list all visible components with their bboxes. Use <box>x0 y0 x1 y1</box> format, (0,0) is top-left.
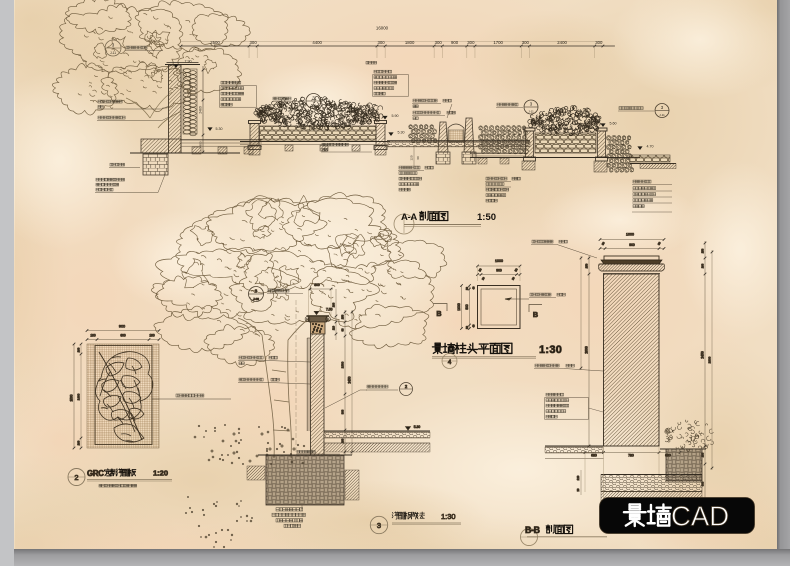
svg-text:2500: 2500 <box>210 40 220 45</box>
svg-text:120: 120 <box>410 155 414 160</box>
svg-text:110: 110 <box>332 325 336 330</box>
svg-text:B-B: B-B <box>525 525 540 535</box>
svg-text:100: 100 <box>77 347 81 352</box>
svg-text:900: 900 <box>629 243 635 247</box>
svg-text:150: 150 <box>585 263 589 268</box>
svg-text:J-11: J-11 <box>528 110 534 114</box>
svg-text:2480: 2480 <box>199 106 203 114</box>
svg-text:200: 200 <box>341 438 345 443</box>
svg-text:4: 4 <box>448 359 452 366</box>
svg-text:100: 100 <box>90 334 96 338</box>
svg-text:J-08: J-08 <box>253 297 259 301</box>
svg-text:B: B <box>533 310 538 319</box>
svg-text:300: 300 <box>314 283 320 287</box>
svg-text:300: 300 <box>377 40 385 45</box>
svg-text:60: 60 <box>341 328 345 331</box>
svg-text:CAD: CAD <box>671 501 729 532</box>
svg-text:2: 2 <box>74 473 78 482</box>
svg-text:150: 150 <box>341 314 345 319</box>
svg-text:60: 60 <box>416 156 420 160</box>
svg-text:5.90: 5.90 <box>392 114 399 118</box>
svg-text:J-11: J-11 <box>659 113 665 117</box>
svg-text:150: 150 <box>701 248 705 253</box>
svg-text:1800: 1800 <box>405 40 415 45</box>
svg-text:1560: 1560 <box>70 394 74 401</box>
svg-text:100: 100 <box>149 334 155 338</box>
svg-text:2450: 2450 <box>701 351 705 359</box>
svg-text:100: 100 <box>701 263 705 268</box>
svg-text:3: 3 <box>377 521 381 530</box>
svg-text:5.60: 5.60 <box>610 122 617 126</box>
svg-text:A-A: A-A <box>401 212 417 223</box>
svg-text:100: 100 <box>77 440 81 445</box>
svg-text:900: 900 <box>199 141 203 146</box>
svg-text:2600: 2600 <box>585 346 589 354</box>
svg-text:900: 900 <box>451 40 459 45</box>
svg-text:1000: 1000 <box>457 303 461 311</box>
svg-text:1000: 1000 <box>626 233 634 237</box>
svg-text:900: 900 <box>496 269 502 273</box>
svg-text:1000: 1000 <box>495 259 503 263</box>
svg-text:900: 900 <box>119 325 125 329</box>
svg-text:1:20: 1:20 <box>153 469 168 478</box>
svg-text:16000: 16000 <box>376 26 389 31</box>
svg-text:2800: 2800 <box>708 356 712 363</box>
svg-text:50: 50 <box>465 287 469 290</box>
svg-text:1360: 1360 <box>77 393 81 400</box>
svg-text:1:50: 1:50 <box>477 212 496 223</box>
svg-text:680: 680 <box>665 454 671 458</box>
svg-text:5.30: 5.30 <box>216 127 223 131</box>
svg-text:300: 300 <box>467 40 475 45</box>
svg-text:300: 300 <box>250 40 258 45</box>
svg-text:900: 900 <box>465 304 469 310</box>
svg-text:1560: 1560 <box>341 361 345 368</box>
svg-text:3: 3 <box>312 96 315 101</box>
svg-text:120: 120 <box>576 475 580 480</box>
svg-text:B: B <box>436 309 441 318</box>
svg-text:2450: 2450 <box>348 376 352 383</box>
svg-text:5.30: 5.30 <box>414 425 421 429</box>
svg-text:300: 300 <box>522 40 530 45</box>
svg-text:4.70: 4.70 <box>647 145 654 149</box>
svg-text:200: 200 <box>332 302 336 307</box>
svg-text:300: 300 <box>595 40 603 45</box>
svg-text:780: 780 <box>628 454 634 458</box>
svg-text:2400: 2400 <box>557 40 567 45</box>
svg-text:680: 680 <box>591 454 597 458</box>
svg-text:J-11: J-11 <box>311 104 317 108</box>
svg-text:50: 50 <box>465 326 469 329</box>
svg-text:5.30: 5.30 <box>398 131 405 135</box>
svg-text:7.90: 7.90 <box>185 60 192 64</box>
svg-text:300: 300 <box>341 409 345 414</box>
svg-text:4400: 4400 <box>312 40 322 45</box>
svg-text:1:30: 1:30 <box>441 512 456 521</box>
svg-text:GRC: GRC <box>87 469 104 478</box>
svg-text:J-11: J-11 <box>110 51 116 55</box>
svg-text:300: 300 <box>435 40 443 45</box>
svg-text:600: 600 <box>120 334 126 338</box>
svg-text:1700: 1700 <box>493 40 503 45</box>
svg-text:1:30: 1:30 <box>539 344 562 356</box>
